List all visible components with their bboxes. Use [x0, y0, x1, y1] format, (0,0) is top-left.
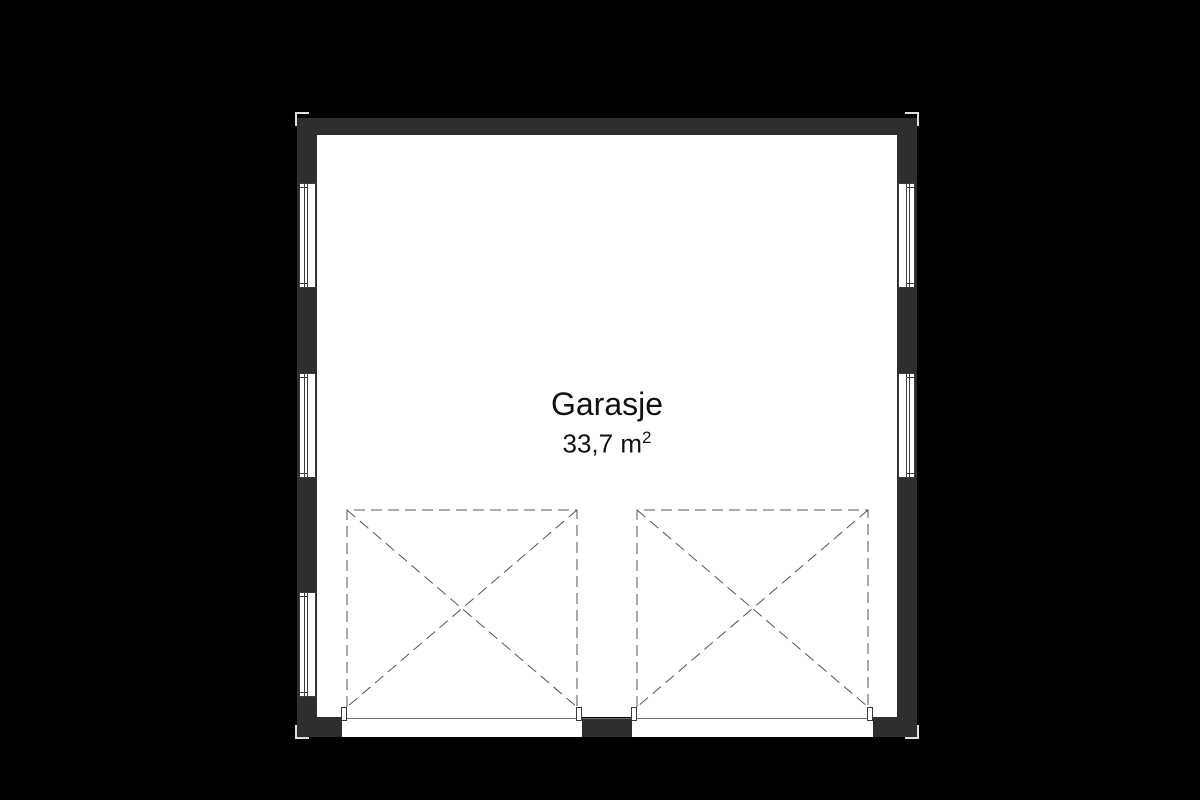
room-label-block: Garasje 33,7 m2 — [297, 387, 917, 459]
room-area-value: 33,7 — [563, 429, 614, 459]
garage-floor-plan: Garasje 33,7 m2 — [297, 115, 917, 740]
room-name: Garasje — [297, 387, 917, 421]
room-area-unit: m — [620, 429, 642, 459]
room-area: 33,7 m2 — [297, 423, 917, 459]
room-area-exponent: 2 — [642, 428, 651, 447]
floor-plan-canvas: Garasje 33,7 m2 — [0, 0, 1200, 800]
